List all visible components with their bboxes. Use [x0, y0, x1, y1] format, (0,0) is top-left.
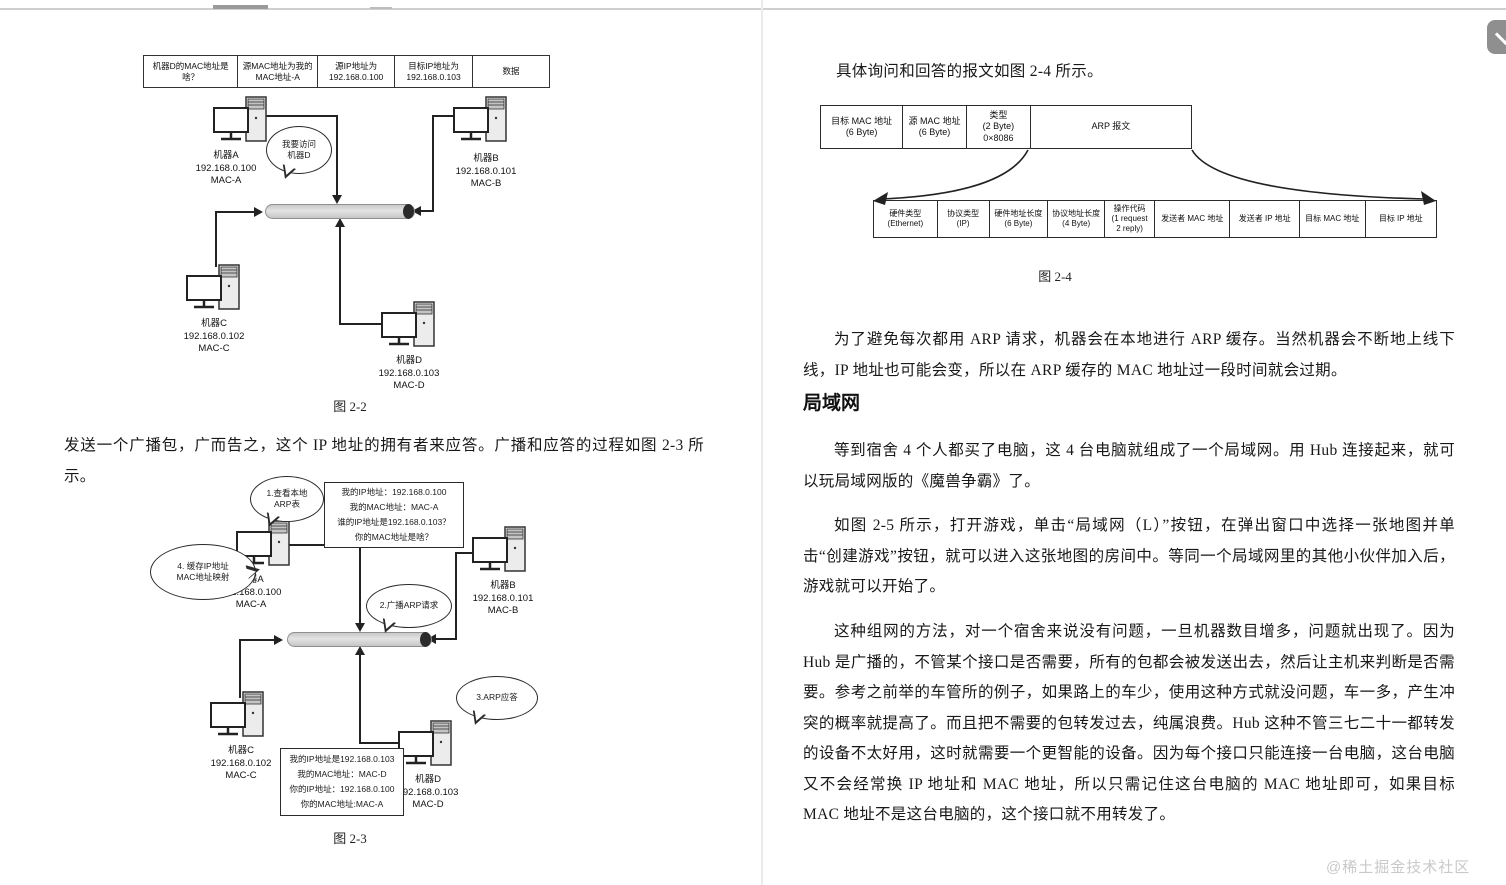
connector-line	[215, 211, 256, 213]
connector-line	[336, 115, 338, 197]
machine-ip: 192.168.0.100	[170, 163, 282, 176]
computer-icon	[381, 301, 437, 358]
speech-bubble: 2.广播ARP请求	[366, 584, 452, 628]
machine-mac: MAC-D	[353, 380, 465, 393]
computer-icon	[472, 526, 528, 583]
packet-field: 源MAC地址为我的 MAC地址-A	[238, 56, 318, 87]
machine-mac: MAC-B	[430, 178, 542, 191]
ethernet-bus	[265, 204, 415, 219]
arp-field: 协议类型 (IP)	[938, 201, 990, 237]
machine-ip: 192.168.0.101	[447, 593, 559, 606]
packet-field: 目标IP地址为 192.168.0.103	[395, 56, 473, 87]
machine-ip: 192.168.0.101	[430, 166, 542, 179]
arp-field: 硬件类型 (Ethernet)	[874, 201, 938, 237]
machine-label: 机器D 192.168.0.103 MAC-D	[353, 355, 465, 393]
computer-icon	[186, 264, 242, 321]
machine-name: 机器C	[158, 318, 270, 331]
packet-field: 源IP地址为 192.168.0.100	[318, 56, 395, 87]
connector-line	[359, 742, 399, 744]
figure-2-3-diagram: 1.查看本地 ARP表 我的IP地址：192.168.0.100 我的MAC地址…	[140, 470, 560, 852]
connector-line	[339, 323, 382, 325]
connector-line	[215, 211, 217, 267]
arrowhead	[332, 195, 342, 204]
scan-artifact	[370, 7, 392, 9]
arp-field: 协议地址长度 (4 Byte)	[1048, 201, 1105, 237]
machine-mac: MAC-A	[195, 599, 307, 612]
connector-line	[455, 552, 473, 554]
connector-line	[359, 654, 361, 744]
figure-2-4-diagram: 目标 MAC 地址 (6 Byte) 源 MAC 地址 (6 Byte) 类型 …	[810, 100, 1490, 245]
arp-reply-box: 我的IP地址是192.168.0.103 我的MAC地址：MAC-D 你的IP地…	[280, 748, 404, 816]
computer-icon	[453, 96, 509, 153]
connector-line	[421, 210, 434, 212]
figure-2-2-diagram: 机器D的MAC地址是 啥？ 源MAC地址为我的 MAC地址-A 源IP地址为 1…	[140, 50, 560, 418]
packet-field: 数据	[473, 56, 549, 87]
machine-ip: 192.168.0.102	[158, 331, 270, 344]
machine-mac: MAC-A	[170, 175, 282, 188]
bus-end-cap	[403, 204, 414, 219]
frame-field: 目标 MAC 地址 (6 Byte)	[821, 106, 903, 148]
machine-mac: MAC-B	[447, 605, 559, 618]
arp-field: 发送者 MAC 地址	[1155, 201, 1230, 237]
arrowhead	[355, 623, 365, 632]
paragraph-lan-3: 这种组网的方法，对一个宿舍来说没有问题，一旦机器数目增多，问题就出现了。因为 H…	[803, 617, 1455, 831]
ethernet-bus	[287, 632, 432, 647]
machine-name: 机器B	[430, 153, 542, 166]
frame-field: 源 MAC 地址 (6 Byte)	[903, 106, 967, 148]
paragraph-lan-1: 等到宿舍 4 个人都买了电脑，这 4 台电脑就组成了一个局域网。用 Hub 连接…	[803, 436, 1455, 497]
machine-label: 机器C 192.168.0.102 MAC-C	[158, 318, 270, 356]
speech-bubble: 我要访问 机器D	[266, 126, 332, 174]
arp-field: 硬件地址长度 (6 Byte)	[990, 201, 1049, 237]
speech-bubble: 3.ARP应答	[456, 676, 538, 720]
ethernet-frame-row: 目标 MAC 地址 (6 Byte) 源 MAC 地址 (6 Byte) 类型 …	[820, 105, 1192, 149]
connector-line	[266, 115, 338, 117]
figure-caption: 图 2-3	[140, 828, 560, 847]
paragraph-arp-cache: 为了避免每次都用 ARP 请求，机器会在本地进行 ARP 缓存。当然机器会不断地…	[803, 325, 1455, 386]
arrowhead	[254, 207, 263, 217]
machine-label: 机器B 192.168.0.101 MAC-B	[447, 580, 559, 618]
machine-mac: MAC-C	[158, 343, 270, 356]
connector-line	[239, 639, 275, 641]
connector-line	[359, 544, 361, 625]
watermark: @稀土掘金技术社区	[1326, 856, 1470, 877]
connector-line	[339, 226, 341, 325]
machine-name: 机器D	[353, 355, 465, 368]
page-divider	[761, 0, 763, 885]
chevron-down-icon	[1494, 24, 1506, 45]
arp-field: 发送者 IP 地址	[1230, 201, 1300, 237]
book-page-spread: { "page": { "watermark": "@稀土掘金技术社区", "f…	[0, 0, 1506, 885]
paragraph-lan-2: 如图 2-5 所示，打开游戏，单击“局域网（L）”按钮，在弹出窗口中选择一张地图…	[803, 511, 1455, 603]
arp-field: 目标 IP 地址	[1366, 201, 1436, 237]
arp-request-box: 我的IP地址：192.168.0.100 我的MAC地址：MAC-A 谁的IP地…	[324, 482, 464, 548]
frame-field: ARP 报文	[1031, 106, 1191, 148]
computer-icon	[398, 720, 454, 777]
machine-name: 机器B	[447, 580, 559, 593]
section-heading-lan: 局域网	[803, 388, 860, 415]
arrowhead	[274, 635, 283, 645]
connector-line	[435, 638, 456, 640]
machine-label: 机器A 192.168.0.100 MAC-A	[170, 150, 282, 188]
scan-artifact	[213, 5, 268, 9]
connector-line	[239, 639, 241, 698]
bus-end-cap	[420, 632, 431, 647]
machine-label: 机器B 192.168.0.101 MAC-B	[430, 153, 542, 191]
packet-fields-table: 机器D的MAC地址是 啥？ 源MAC地址为我的 MAC地址-A 源IP地址为 1…	[143, 55, 550, 88]
funnel-connector	[810, 148, 1470, 206]
machine-ip: 192.168.0.103	[353, 368, 465, 381]
arp-field: 目标 MAC 地址	[1300, 201, 1366, 237]
packet-field: 机器D的MAC地址是 啥？	[144, 56, 238, 87]
speech-bubble: 1.查看本地 ARP表	[250, 476, 324, 522]
frame-field: 类型 (2 Byte) 0×8086	[967, 106, 1031, 148]
scroll-down-button[interactable]	[1487, 20, 1506, 54]
figure-caption: 图 2-2	[140, 396, 560, 415]
speech-bubble: 4. 缓存IP地址 MAC地址映射	[150, 544, 256, 600]
computer-icon	[213, 96, 269, 153]
arp-field: 操作代码 (1 request 2 reply)	[1105, 201, 1155, 237]
figure-caption: 图 2-4	[970, 266, 1140, 285]
computer-icon	[210, 691, 266, 748]
paragraph-intro: 具体询问和回答的报文如图 2-4 所示。	[805, 57, 1455, 88]
